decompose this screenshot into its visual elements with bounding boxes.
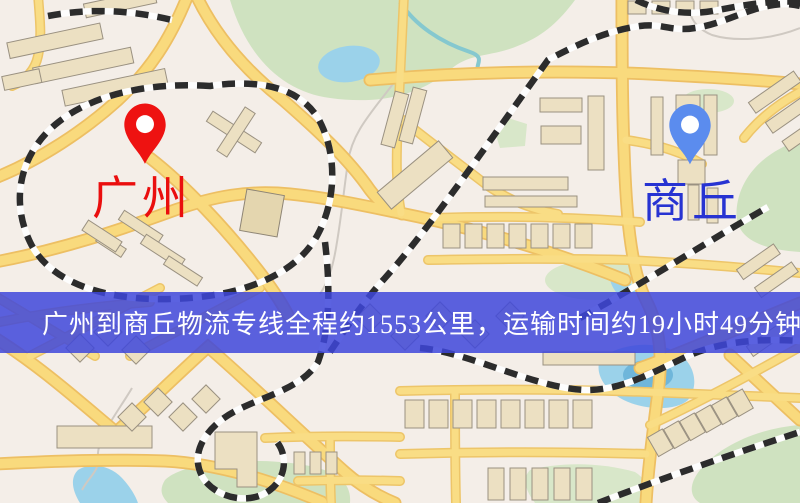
map-pin-icon	[122, 99, 168, 170]
origin-city-label: 广州	[92, 176, 192, 222]
origin-map-pin[interactable]	[122, 99, 168, 170]
map-pin-icon	[667, 99, 713, 171]
destination-city-label: 商丘	[642, 179, 742, 225]
map-view: 广州 商丘 广州到商丘物流专线全程约1553公里，运输时间约19小时49分钟.	[0, 0, 800, 503]
route-info-text: 广州到商丘物流专线全程约1553公里，运输时间约19小时49分钟.	[42, 304, 800, 341]
destination-map-pin[interactable]	[667, 99, 713, 171]
map-canvas[interactable]	[0, 0, 800, 503]
route-info-banner: 广州到商丘物流专线全程约1553公里，运输时间约19小时49分钟.	[0, 292, 800, 353]
